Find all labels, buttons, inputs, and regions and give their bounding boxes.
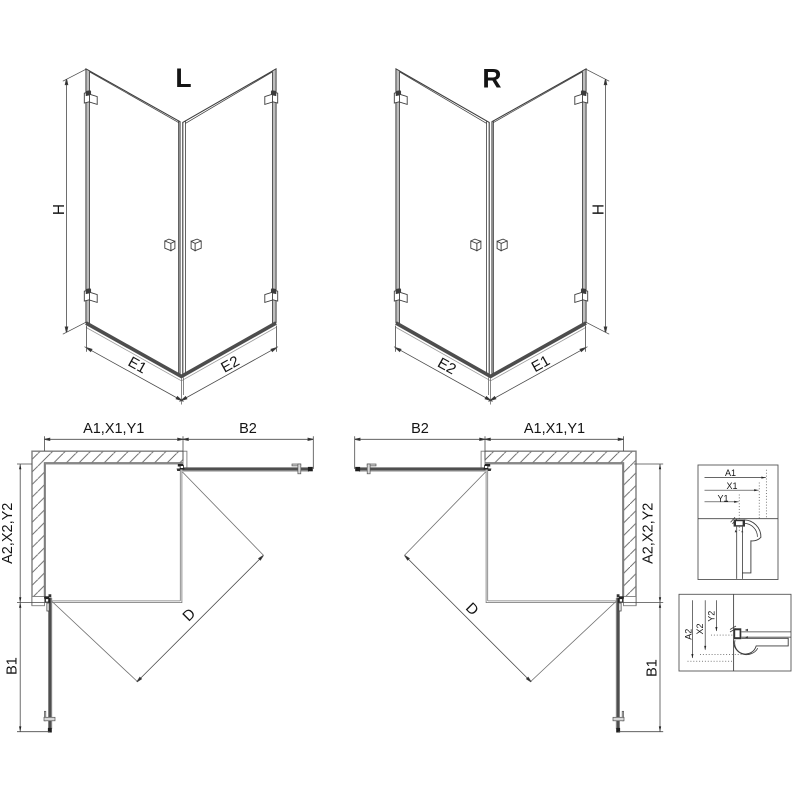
svg-text:Y1: Y1 <box>717 493 728 503</box>
svg-text:A2,X2,Y2: A2,X2,Y2 <box>0 503 16 564</box>
svg-text:H: H <box>51 204 68 215</box>
svg-text:A1,X1,Y1: A1,X1,Y1 <box>524 421 585 437</box>
svg-text:A1: A1 <box>725 468 736 478</box>
svg-text:B1: B1 <box>645 659 661 677</box>
svg-text:R: R <box>482 64 501 94</box>
svg-text:H: H <box>591 204 608 215</box>
svg-text:B2: B2 <box>239 421 257 437</box>
svg-text:A2: A2 <box>683 629 693 640</box>
svg-text:L: L <box>175 63 191 93</box>
svg-text:A2,X2,Y2: A2,X2,Y2 <box>641 503 657 564</box>
svg-text:X2: X2 <box>695 623 705 634</box>
svg-text:B2: B2 <box>411 421 429 437</box>
svg-text:Y2: Y2 <box>706 611 716 622</box>
svg-text:B1: B1 <box>5 657 21 675</box>
svg-text:X1: X1 <box>726 481 737 491</box>
svg-text:A1,X1,Y1: A1,X1,Y1 <box>83 421 144 437</box>
